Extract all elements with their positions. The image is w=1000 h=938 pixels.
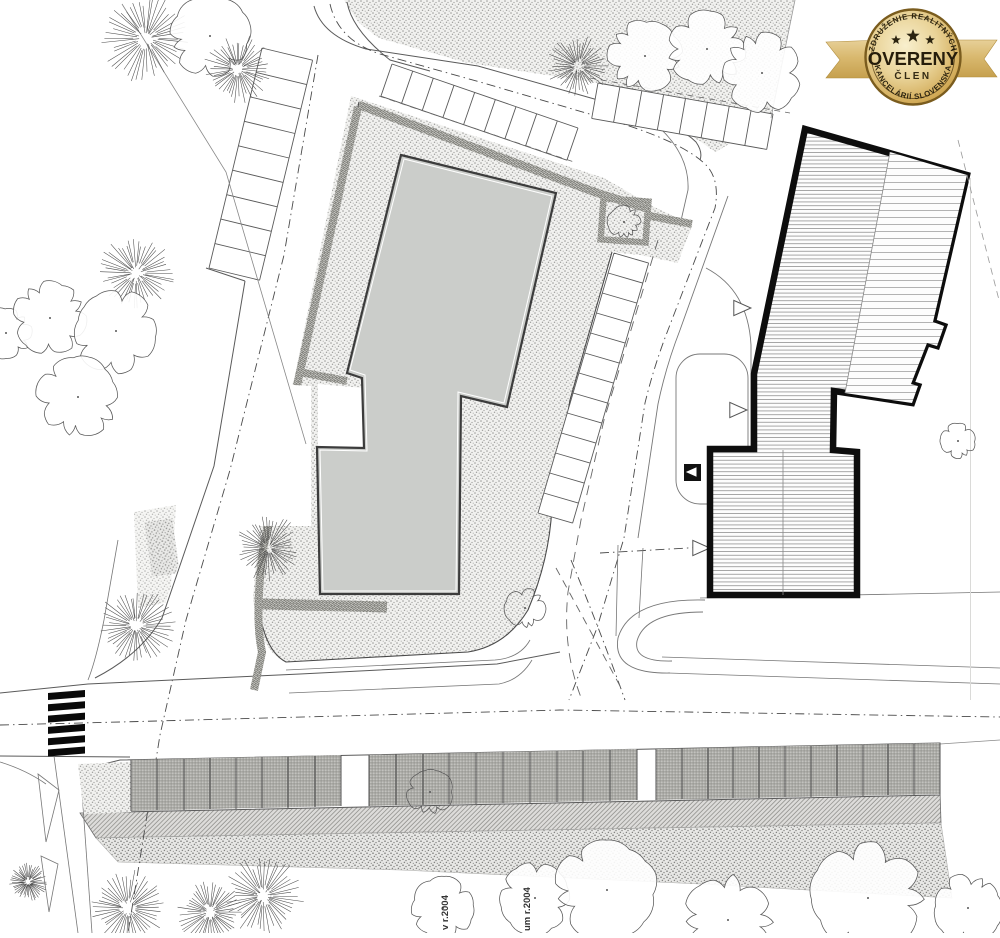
svg-text:OVERENÝ: OVERENÝ bbox=[868, 48, 959, 69]
svg-text:ČLEN: ČLEN bbox=[894, 69, 931, 82]
svg-text:um r.2004: um r.2004 bbox=[522, 886, 533, 931]
svg-text:v r.2004: v r.2004 bbox=[440, 894, 451, 930]
